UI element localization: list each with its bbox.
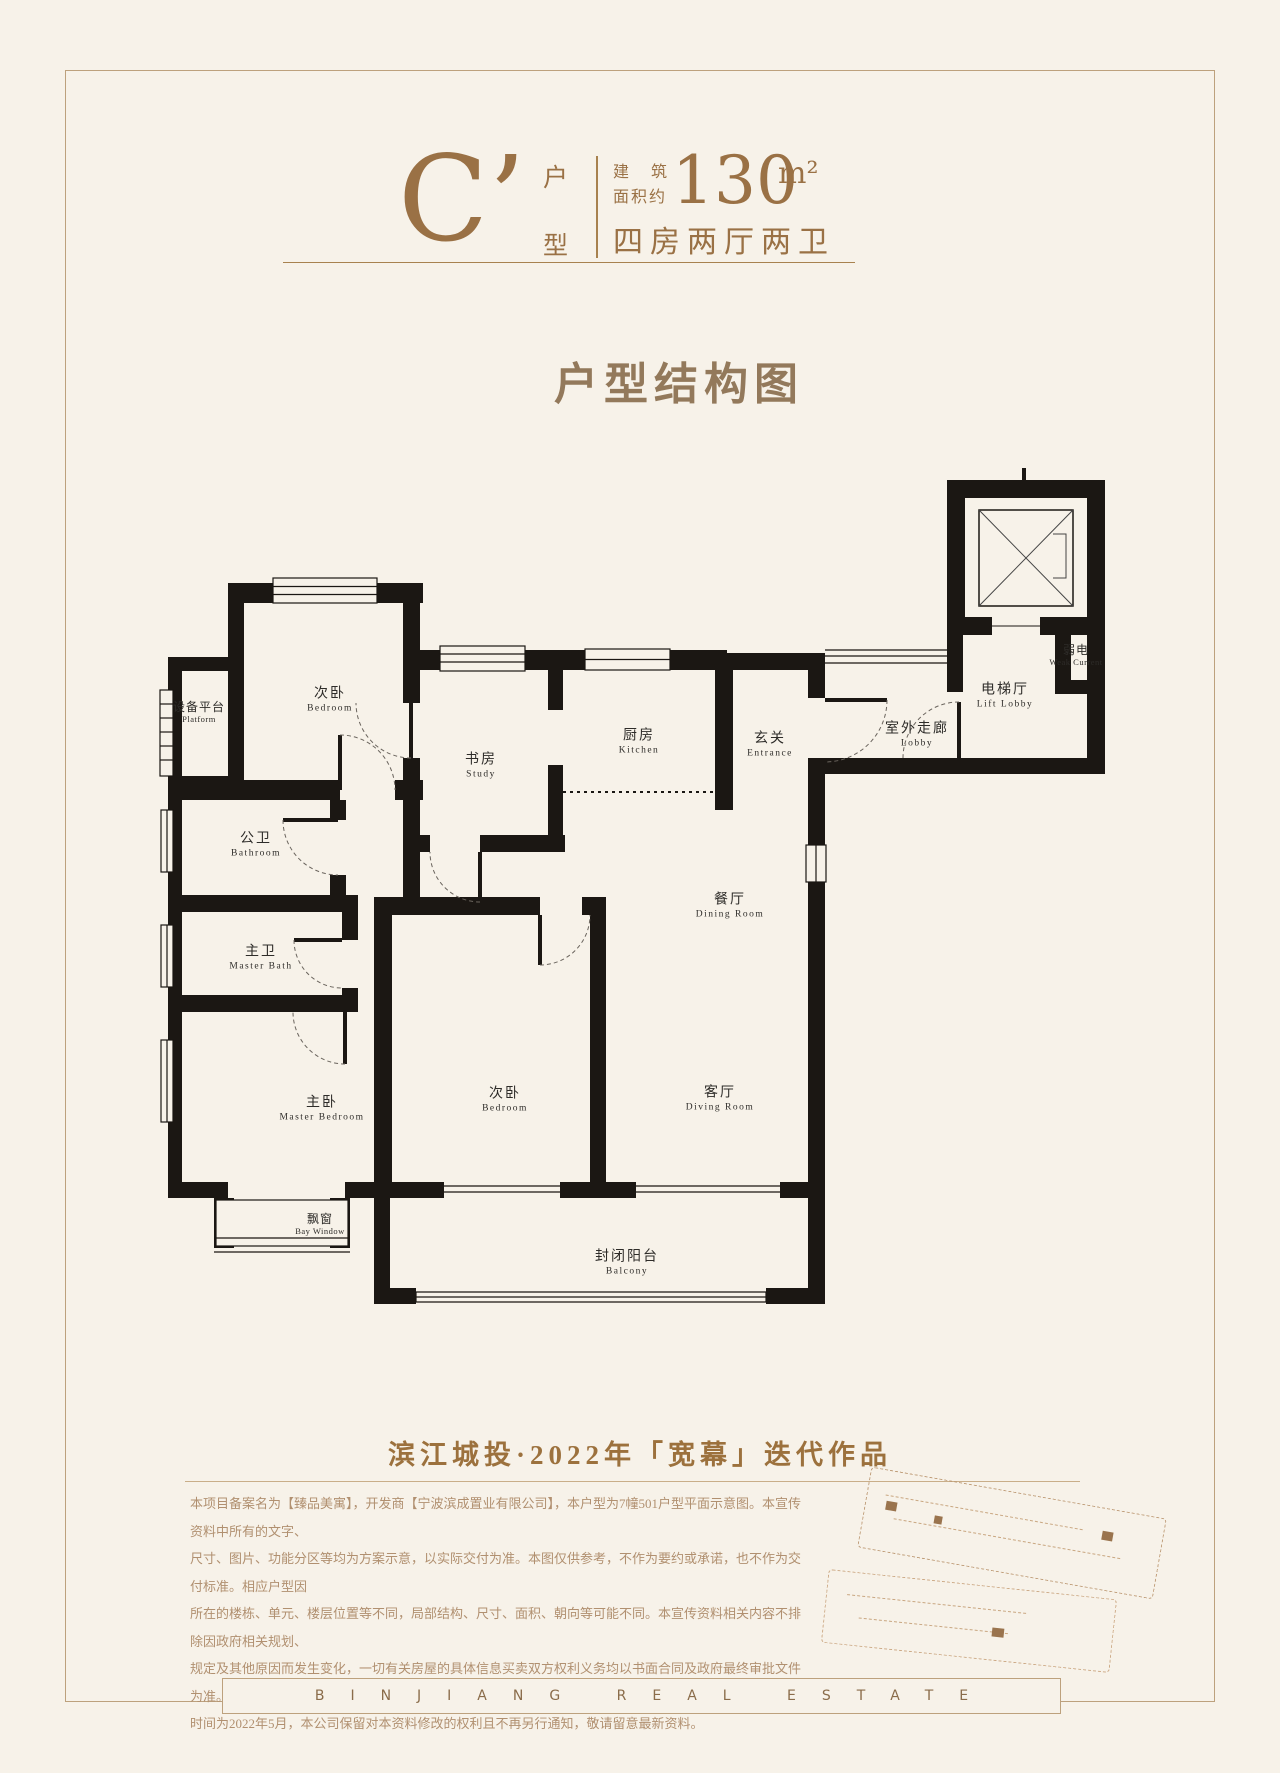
room-label-bay-window: 飘窗 Bay Window [295, 1212, 345, 1236]
room-label-living-room: 客厅 Diving Room [686, 1085, 755, 1114]
footer-brand-text: BINJIANG REAL ESTATE [289, 1688, 994, 1704]
room-label-dining-room: 餐厅 Dining Room [696, 892, 765, 921]
room-label-weak-current: 弱电 Weak Current [1049, 643, 1102, 667]
room-label-outdoor-corridor: 室外走廊 Lobby [885, 721, 949, 750]
room-label-lift-lobby: 电梯厅 Lift Lobby [977, 682, 1033, 711]
room-label-balcony: 封闭阳台 Balcony [595, 1249, 659, 1278]
room-label-entrance: 玄关 Entrance [747, 731, 793, 760]
footer-brand-box: BINJIANG REAL ESTATE [222, 1678, 1061, 1714]
room-label-study: 书房 Study [465, 752, 497, 781]
room-label-bedroom-top: 次卧 Bedroom [307, 686, 353, 715]
poster-page: C’ 户 型 建 筑 面积约 130 m² 四房两厅两卫 户型结构图 [0, 0, 1280, 1773]
room-label-bedroom-bottom: 次卧 Bedroom [482, 1086, 528, 1115]
room-label-bathroom: 公卫 Bathroom [231, 831, 281, 860]
room-label-master-bedroom: 主卧 Master Bedroom [279, 1095, 364, 1124]
room-label-kitchen: 厨房 Kitchen [619, 728, 660, 757]
tagline: 滨江城投·2022年「宽幕」迭代作品 [0, 1433, 1280, 1472]
room-label-master-bath: 主卫 Master Bath [229, 944, 292, 973]
room-label-platform: 设备平台 Platform [173, 700, 225, 724]
elevator-shaft [979, 510, 1073, 626]
